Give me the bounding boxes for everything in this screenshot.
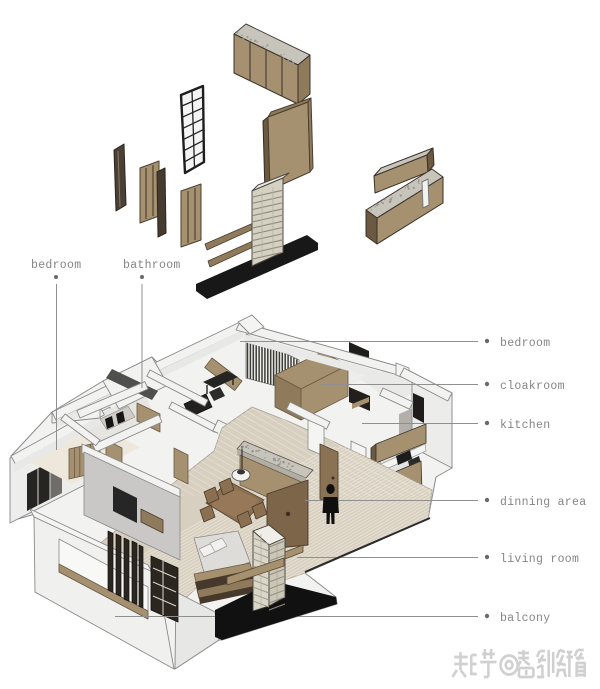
svg-text:dinning area: dinning area <box>500 496 586 509</box>
svg-text:balcony: balcony <box>500 612 550 625</box>
svg-text:bedroom: bedroom <box>500 337 550 350</box>
svg-text:kitchen: kitchen <box>500 419 550 432</box>
svg-text:cloakroom: cloakroom <box>500 380 565 393</box>
svg-text:bathroom: bathroom <box>123 259 181 272</box>
svg-text:living room: living room <box>500 553 579 566</box>
svg-text:bedroom: bedroom <box>31 259 81 272</box>
